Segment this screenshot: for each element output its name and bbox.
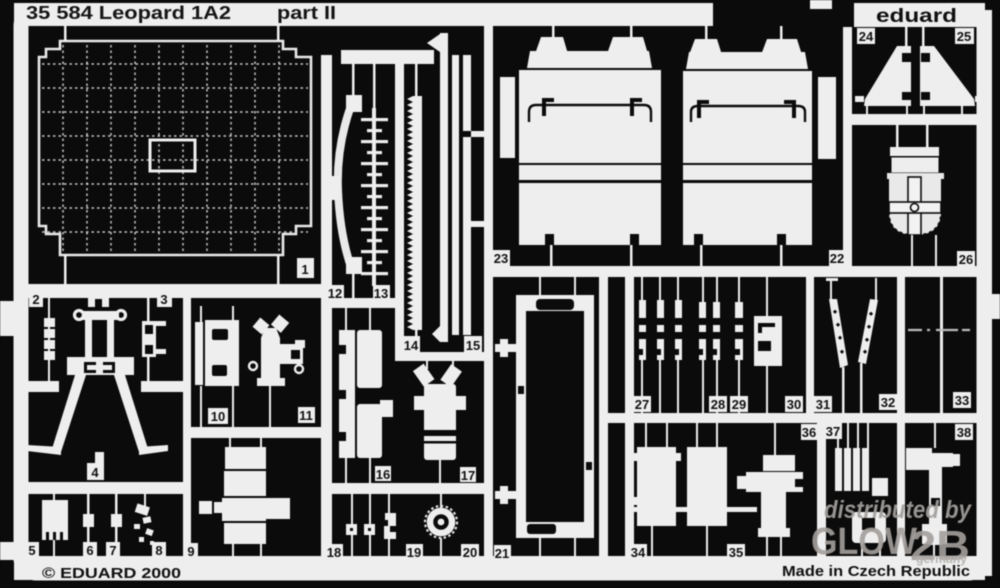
svg-text:12: 12 [328,286,342,301]
svg-text:16: 16 [376,467,390,482]
svg-text:27: 27 [635,397,649,412]
svg-text:1: 1 [301,262,308,277]
svg-text:24: 24 [859,29,874,44]
svg-text:23: 23 [494,251,508,266]
svg-text:6: 6 [86,543,93,558]
svg-text:14: 14 [404,338,419,353]
svg-text:26: 26 [959,252,973,267]
svg-text:19: 19 [407,545,421,560]
svg-text:35: 35 [729,545,743,560]
svg-text:30: 30 [787,397,801,412]
svg-text:distributed by: distributed by [824,496,972,524]
svg-text:36: 36 [802,425,816,440]
svg-text:21: 21 [495,546,509,561]
svg-text:13: 13 [374,286,388,301]
svg-text:38: 38 [957,425,971,440]
svg-text:28: 28 [711,397,725,412]
svg-text:22: 22 [830,251,844,266]
svg-text:part II: part II [277,3,336,23]
svg-text:© EDUARD 2000: © EDUARD 2000 [42,565,181,582]
svg-text:33: 33 [955,393,969,408]
svg-text:15: 15 [466,338,480,353]
svg-text:7: 7 [109,543,116,558]
svg-text:17: 17 [461,468,475,483]
svg-text:18: 18 [327,545,341,560]
svg-text:germany: germany [916,552,967,566]
svg-text:4: 4 [91,465,99,480]
svg-text:11: 11 [299,408,313,423]
svg-text:10: 10 [211,409,225,424]
svg-text:34: 34 [631,545,646,560]
svg-text:37: 37 [826,424,840,439]
svg-text:2: 2 [32,292,39,307]
svg-text:29: 29 [732,397,746,412]
svg-text:32: 32 [881,395,895,410]
svg-text:25: 25 [957,29,971,44]
svg-text:5: 5 [28,543,35,558]
svg-text:31: 31 [816,397,830,412]
svg-text:8: 8 [155,543,162,558]
svg-text:GLOW: GLOW [811,521,917,563]
svg-text:9: 9 [187,544,194,559]
svg-text:3: 3 [160,292,167,307]
svg-text:35 584 Leopard 1A2: 35 584 Leopard 1A2 [26,3,231,23]
svg-text:20: 20 [463,545,477,560]
svg-text:eduard: eduard [876,6,957,27]
